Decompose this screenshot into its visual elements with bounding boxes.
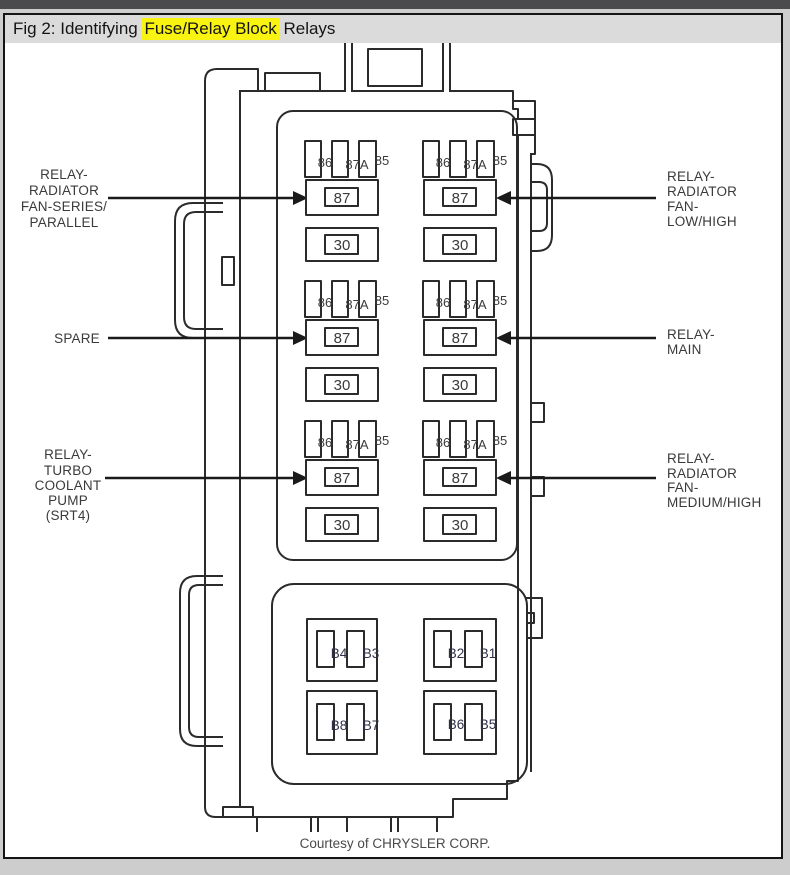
callout-line: RADIATOR: [667, 466, 737, 481]
right-latch: [531, 164, 552, 251]
relay-group-1: 86 87A 85 87 30: [305, 141, 389, 261]
terminal-87-label: 87: [334, 470, 351, 487]
top-connector-body: [368, 49, 422, 86]
callout-line: SPARE: [54, 331, 100, 346]
terminal-87a-label: 87A: [463, 157, 486, 172]
left-clip-upper-step: [222, 257, 234, 285]
fuse-slot: [347, 704, 364, 740]
fuse-square-top-left: B4 B3: [307, 619, 379, 681]
bottom-pins: [257, 817, 437, 831]
callout-line: RADIATOR: [29, 183, 99, 198]
terminal-30-label: 30: [452, 377, 469, 394]
terminal-86-label: 86: [318, 155, 332, 170]
diagram-svg: B4 B3 B2 B1 B8 B7 B6 B5: [5, 43, 781, 857]
terminal-87-label: 87: [452, 190, 469, 207]
terminal-30-label: 30: [334, 377, 351, 394]
relay-group-4: 86 87A 85 87 30: [423, 281, 507, 401]
callout-relay-turbo-coolant-pump: RELAY- TURBO COOLANT PUMP (SRT4): [35, 447, 102, 523]
terminal-87a-label: 87A: [345, 157, 368, 172]
fuse-square-top-right: B2 B1: [424, 619, 496, 681]
arrowhead-right-1: [496, 191, 511, 205]
relay-group-6: 86 87A 85 87 30: [423, 421, 507, 541]
relay-group-2: 86 87A 85 87 30: [423, 141, 507, 261]
callout-line: FAN-: [667, 199, 699, 214]
relay-group-3: 86 87A 85 87 30: [305, 281, 389, 401]
callout-relay-radiator-fan-low-high: RELAY- RADIATOR FAN- LOW/HIGH: [667, 169, 737, 229]
terminal-85-label: 85: [375, 433, 389, 448]
terminal-87a-label: 87A: [463, 297, 486, 312]
callout-line: MEDIUM/HIGH: [667, 495, 761, 510]
callout-spare: SPARE: [54, 331, 100, 346]
callout-line: RELAY-: [40, 167, 88, 182]
terminal-85-label: 85: [493, 293, 507, 308]
terminal-86-label: 86: [318, 435, 332, 450]
right-tabs: [527, 403, 544, 638]
arrowhead-right-3: [496, 471, 511, 485]
callout-line: LOW/HIGH: [667, 214, 737, 229]
callout-line: RELAY-: [667, 327, 715, 342]
callout-line: FAN-: [667, 480, 699, 495]
terminal-87a-label: 87A: [345, 437, 368, 452]
fuse-label-b3: B3: [363, 646, 380, 661]
fuse-label-b6: B6: [448, 717, 465, 732]
terminal-30-label: 30: [452, 517, 469, 534]
callout-relay-radiator-fan-medium-high: RELAY- RADIATOR FAN- MEDIUM/HIGH: [667, 451, 761, 510]
window-top-bar: [0, 0, 790, 9]
callout-line: RELAY-: [667, 169, 715, 184]
terminal-85-label: 85: [375, 293, 389, 308]
callout-line: (SRT4): [46, 508, 90, 523]
terminal-30-label: 30: [334, 237, 351, 254]
callout-line: PUMP: [48, 493, 88, 508]
terminal-87-label: 87: [334, 330, 351, 347]
arrowhead-right-2: [496, 331, 511, 345]
fuse-relay-block-diagram: B4 B3 B2 B1 B8 B7 B6 B5: [5, 43, 781, 857]
fuse-label-b8: B8: [331, 718, 348, 733]
fuse-label-b5: B5: [480, 717, 497, 732]
figure-title-prefix: Fig 2: Identifying: [13, 19, 142, 39]
fuse-label-b1: B1: [480, 646, 497, 661]
terminal-87a-label: 87A: [463, 437, 486, 452]
callout-line: RADIATOR: [667, 184, 737, 199]
terminal-85-label: 85: [375, 153, 389, 168]
callout-line: COOLANT: [35, 478, 102, 493]
terminal-85-label: 85: [493, 433, 507, 448]
callout-relay-radiator-fan-series-parallel: RELAY- RADIATOR FAN-SERIES/ PARALLEL: [21, 167, 107, 230]
callout-line: FAN-SERIES/: [21, 199, 107, 214]
terminal-86-label: 86: [436, 295, 450, 310]
callout-line: MAIN: [667, 342, 702, 357]
terminal-85-label: 85: [493, 153, 507, 168]
fuse-label-b4: B4: [331, 646, 348, 661]
terminal-87-label: 87: [452, 470, 469, 487]
terminal-87-label: 87: [452, 330, 469, 347]
top-left-tab: [265, 73, 320, 91]
callout-relay-main: RELAY- MAIN: [667, 327, 715, 357]
callout-line: RELAY-: [667, 451, 715, 466]
terminal-87a-label: 87A: [345, 297, 368, 312]
left-foot: [223, 807, 253, 817]
callout-line: PARALLEL: [30, 215, 99, 230]
fuse-square-bottom-left: B8 B7: [307, 691, 379, 754]
figure-title-bar: Fig 2: Identifying Fuse/Relay Block Rela…: [5, 15, 781, 43]
fuse-label-b2: B2: [448, 646, 465, 661]
terminal-86-label: 86: [318, 295, 332, 310]
fuse-label-b7: B7: [363, 718, 380, 733]
terminal-86-label: 86: [436, 155, 450, 170]
terminal-30-label: 30: [452, 237, 469, 254]
relay-group-5: 86 87A 85 87 30: [305, 421, 389, 541]
figure-title-suffix: Relays: [279, 19, 336, 39]
left-clip-upper: [175, 203, 222, 338]
figure-title-highlight: Fuse/Relay Block: [142, 18, 278, 40]
callout-line: TURBO: [44, 463, 92, 478]
figure-page: Fig 2: Identifying Fuse/Relay Block Rela…: [3, 13, 783, 859]
left-clip-lower: [180, 576, 222, 746]
fuse-square-bottom-right: B6 B5: [424, 691, 496, 754]
terminal-87-label: 87: [334, 190, 351, 207]
terminal-86-label: 86: [436, 435, 450, 450]
fuse-slot: [347, 631, 364, 667]
terminal-30-label: 30: [334, 517, 351, 534]
callout-line: RELAY-: [44, 447, 92, 462]
courtesy-note: Courtesy of CHRYSLER CORP.: [300, 836, 491, 851]
